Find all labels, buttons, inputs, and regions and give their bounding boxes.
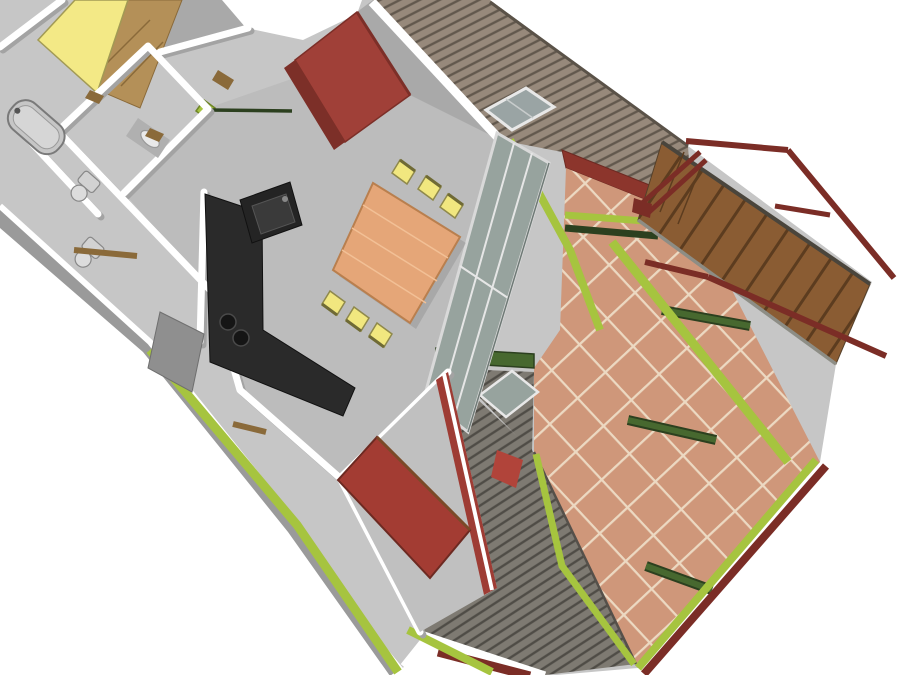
cooktop-burner-1 xyxy=(220,314,236,330)
sink-faucet xyxy=(282,196,288,202)
handrail-top xyxy=(686,141,788,150)
handrail-mid xyxy=(775,206,830,215)
floor-plan-render xyxy=(0,0,900,675)
render-canvas xyxy=(0,0,900,675)
wall-plate-beam xyxy=(209,110,292,111)
cooktop-burner-2 xyxy=(233,330,249,346)
